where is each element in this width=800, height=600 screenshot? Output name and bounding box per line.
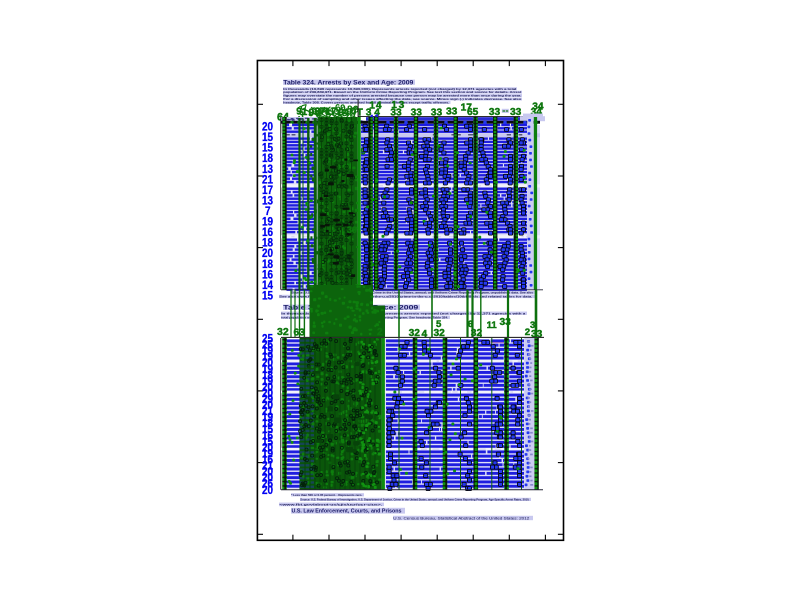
svg-text:33: 33	[500, 317, 512, 328]
svg-text:33: 33	[446, 107, 458, 118]
svg-text:6: 6	[468, 319, 473, 330]
svg-text:figures may overstate the numb: figures may overstate the number of pers…	[283, 94, 521, 98]
svg-text:39: 39	[347, 225, 357, 235]
svg-text:5: 5	[436, 319, 442, 330]
svg-text:<www.fbi.gov/about-us/cjis/ucr: <www.fbi.gov/about-us/cjis/ucr/ucr-cius>…	[279, 503, 382, 507]
svg-text:63: 63	[294, 328, 306, 339]
svg-text:20: 20	[262, 483, 273, 497]
svg-text:In thousands (10,690 represent: In thousands (10,690 represents 10,690,0…	[283, 87, 516, 91]
svg-text:Crime in the United States, an: Crime in the United States, annual; and …	[372, 291, 534, 295]
svg-text:U.S. Census Bureau, Statistica: U.S. Census Bureau, Statistical Abstract…	[393, 516, 529, 520]
svg-text:3: 3	[530, 320, 535, 331]
svg-text:4: 4	[422, 329, 428, 340]
svg-text:Source: U.S. Federal Bureau of: Source: U.S. Federal Bureau of Investiga…	[300, 498, 529, 502]
svg-text:2: 2	[377, 327, 383, 338]
svg-text:32: 32	[277, 326, 289, 338]
svg-text:U.S. Law Enforcement, Courts,: U.S. Law Enforcement, Courts, and Prison…	[292, 509, 402, 515]
svg-text:15: 15	[262, 288, 273, 302]
svg-text:population of 239,839,971. Bas: population of 239,839,971. Based on the …	[283, 90, 521, 94]
svg-text:11: 11	[487, 320, 498, 331]
svg-text:Table 324. Arrests by Sex and: Table 324. Arrests by Sex and Age: 2009	[283, 79, 414, 86]
svg-text:headnote, Table 308. Covers pe: headnote, Table 308. Covers persons arre…	[283, 101, 449, 105]
svg-text:34: 34	[532, 101, 544, 112]
svg-text:* Less than 500 or 0.05 percen: * Less than 500 or 0.05 percent. - Repre…	[291, 493, 362, 497]
